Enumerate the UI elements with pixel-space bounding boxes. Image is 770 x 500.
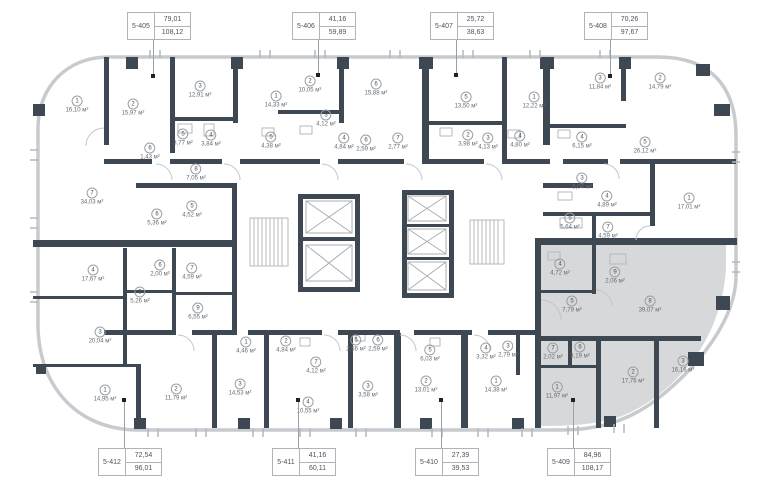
unit-living-area: 27,39 xyxy=(443,449,478,463)
unit-leader-line xyxy=(456,39,457,75)
unit-areas: 25,7238,63 xyxy=(458,13,493,39)
unit-total-area: 108,12 xyxy=(155,27,190,40)
unit-id: 5-406 xyxy=(293,13,320,39)
unit-leader-line xyxy=(318,39,319,75)
unit-label-5-407[interactable]: 5-40725,7238,63 xyxy=(430,12,494,40)
unit-anchor-dot xyxy=(296,398,300,402)
unit-label-5-405[interactable]: 5-40579,01108,12 xyxy=(127,12,191,40)
unit-label-5-408[interactable]: 5-40870,2697,67 xyxy=(584,12,648,40)
unit-total-area: 38,63 xyxy=(458,27,493,40)
unit-id: 5-405 xyxy=(128,13,155,39)
unit-id: 5-408 xyxy=(585,13,612,39)
unit-areas: 41,1659,89 xyxy=(320,13,355,39)
unit-leader-line xyxy=(610,39,611,76)
unit-id: 5-410 xyxy=(416,449,443,475)
unit-areas: 70,2697,67 xyxy=(612,13,647,39)
unit-id: 5-411 xyxy=(273,449,300,475)
unit-label-5-411[interactable]: 5-41141,1660,11 xyxy=(272,448,336,476)
unit-areas: 84,96108,17 xyxy=(575,449,610,475)
unit-living-area: 84,96 xyxy=(575,449,610,463)
unit-areas: 41,1660,11 xyxy=(300,449,335,475)
unit-leader-line xyxy=(573,400,574,448)
unit-living-area: 41,16 xyxy=(300,449,335,463)
unit-leader-line xyxy=(124,400,125,448)
unit-anchor-dot xyxy=(454,73,458,77)
unit-anchor-dot xyxy=(571,398,575,402)
unit-total-area: 108,17 xyxy=(575,463,610,476)
unit-label-5-410[interactable]: 5-41027,3939,53 xyxy=(415,448,479,476)
unit-living-area: 79,01 xyxy=(155,13,190,27)
unit-anchor-dot xyxy=(608,74,612,78)
unit-areas: 27,3939,53 xyxy=(443,449,478,475)
unit-anchor-dot xyxy=(316,73,320,77)
floor-plan-canvas: 116,10 м²215,97 м²312,91 м²53,77 м²43,84… xyxy=(0,0,770,500)
unit-living-area: 70,26 xyxy=(612,13,647,27)
unit-id: 5-412 xyxy=(99,449,126,475)
unit-total-area: 97,67 xyxy=(612,27,647,40)
unit-id: 5-409 xyxy=(548,449,575,475)
unit-id: 5-407 xyxy=(431,13,458,39)
unit-areas: 72,5496,01 xyxy=(126,449,161,475)
unit-leader-line xyxy=(298,400,299,448)
unit-anchor-dot xyxy=(122,398,126,402)
unit-living-area: 41,16 xyxy=(320,13,355,27)
unit-living-area: 25,72 xyxy=(458,13,493,27)
unit-total-area: 59,89 xyxy=(320,27,355,40)
floor-plan-svg xyxy=(0,0,770,500)
unit-living-area: 72,54 xyxy=(126,449,161,463)
unit-total-area: 60,11 xyxy=(300,463,335,476)
unit-anchor-dot xyxy=(439,398,443,402)
unit-leader-line xyxy=(153,39,154,76)
unit-label-5-406[interactable]: 5-40641,1659,89 xyxy=(292,12,356,40)
unit-label-5-412[interactable]: 5-41272,5496,01 xyxy=(98,448,162,476)
unit-leader-line xyxy=(441,400,442,448)
unit-total-area: 96,01 xyxy=(126,463,161,476)
unit-total-area: 39,53 xyxy=(443,463,478,476)
selected-unit-region[interactable] xyxy=(537,241,726,426)
unit-anchor-dot xyxy=(151,74,155,78)
unit-label-5-409[interactable]: 5-40984,96108,17 xyxy=(547,448,611,476)
unit-areas: 79,01108,12 xyxy=(155,13,190,39)
